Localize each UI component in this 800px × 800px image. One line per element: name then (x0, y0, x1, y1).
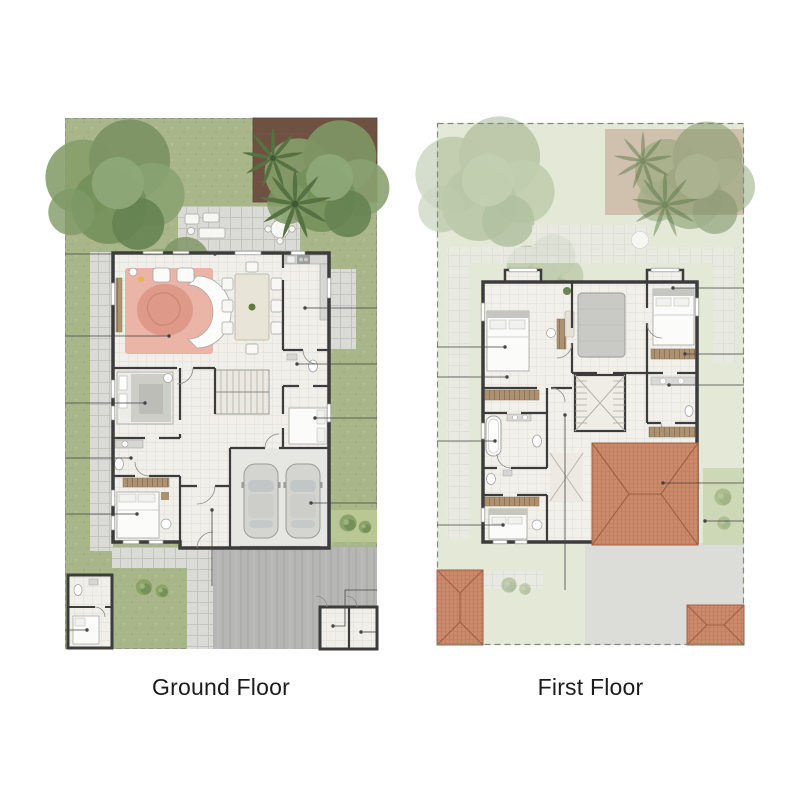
wardrobe (123, 478, 169, 487)
toilet (533, 435, 542, 447)
staircase (215, 370, 269, 414)
wardrobe (649, 427, 695, 437)
vanity (651, 377, 695, 385)
shrub (136, 579, 152, 595)
shrub (519, 583, 531, 595)
toilet (74, 585, 82, 596)
shrub (339, 514, 356, 531)
bedroom-mid-left (117, 372, 173, 424)
garden-patch-faded (703, 468, 744, 545)
void-over-entry (550, 453, 583, 501)
toilet (487, 474, 496, 485)
first-floor-plan (437, 123, 744, 645)
sideboard (116, 278, 122, 332)
shrub (156, 585, 169, 598)
sink (287, 256, 295, 263)
hip-roof-garage (592, 443, 698, 545)
armchair (153, 268, 170, 282)
staircase (575, 375, 625, 431)
hip-roof-gate (687, 605, 744, 645)
shrub (501, 577, 516, 592)
hip-roof-outbuilding (437, 570, 483, 645)
toilet (685, 406, 693, 417)
wardrobe (485, 497, 539, 506)
desk (557, 319, 566, 349)
wardrobe (485, 390, 539, 400)
living-room (116, 268, 231, 354)
armchair (177, 268, 194, 282)
toilet (115, 458, 124, 470)
dressing-left (485, 390, 539, 400)
round-table-faded (632, 232, 649, 249)
shrub (714, 488, 731, 505)
armchair (532, 520, 542, 530)
car (284, 464, 323, 538)
stove (297, 255, 310, 264)
plant (563, 287, 571, 295)
car (242, 464, 281, 538)
floorplan-sheet: Ground Floor First Floor (0, 0, 800, 800)
floor-lamp (129, 268, 137, 276)
maid-room-outbuilding (68, 575, 112, 648)
desk-chair (547, 329, 556, 338)
first-floor-label: First Floor (437, 674, 744, 701)
shrub (717, 516, 731, 530)
shrub (359, 521, 372, 534)
ground-floor-label: Ground Floor (65, 674, 377, 701)
ground-floor-plan (65, 118, 377, 649)
